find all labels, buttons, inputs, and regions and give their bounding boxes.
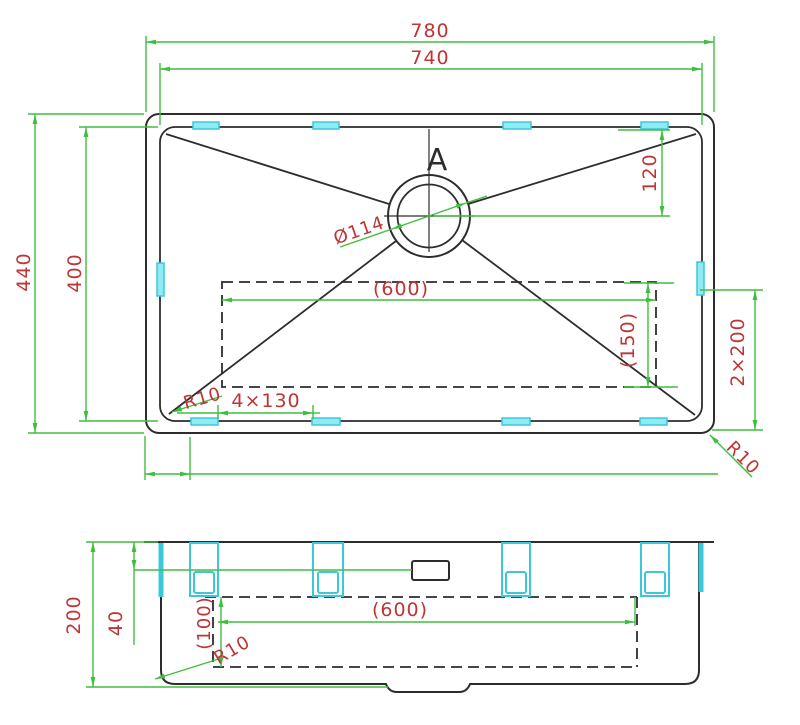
sink-technical-drawing: A — [0, 0, 800, 725]
dim-width-outer: 780 — [410, 20, 449, 42]
top-view: A — [13, 20, 764, 480]
bowl-base-hidden-outline — [222, 282, 656, 387]
clip-top-3 — [503, 122, 531, 129]
dim-right-offset: 2×200 — [727, 317, 749, 386]
dim-bowl-width: (600) — [372, 599, 428, 621]
dim-bowl-depth: (100) — [194, 596, 215, 649]
clip-top-4 — [641, 122, 668, 129]
radius-leader-side — [155, 657, 225, 679]
dim-total-height: 200 — [63, 595, 85, 634]
clip-top-2 — [313, 122, 339, 129]
clip-bottom-2 — [312, 418, 340, 425]
dim-width-inner: 740 — [410, 47, 449, 69]
dim-base-height: (150) — [617, 312, 639, 368]
dim-height-inner: 400 — [64, 253, 86, 292]
clip-top-1 — [193, 122, 219, 129]
section-label: A — [427, 143, 448, 178]
side-view: 200 40 (100) (600) R10 — [63, 542, 714, 692]
side-clip-4-foot — [645, 572, 665, 593]
side-clip-1-foot — [194, 572, 214, 593]
clip-bottom-1 — [191, 418, 218, 425]
dim-clip-pitch: 4×130 — [231, 390, 300, 412]
side-body-outline — [161, 542, 699, 692]
dim-rim-height: 40 — [105, 610, 127, 636]
side-drain-mark — [412, 561, 449, 580]
clip-bottom-3 — [502, 418, 530, 425]
dimension-lines-side-view — [86, 542, 635, 687]
side-clip-3-foot — [506, 572, 526, 593]
clip-bottom-4 — [640, 418, 667, 425]
clip-left — [157, 263, 164, 296]
dim-bottom-radius: R10 — [210, 632, 254, 669]
dim-height-outer: 440 — [13, 252, 35, 291]
dimension-lines-top-view — [28, 36, 763, 480]
dim-radius-bottom-right: R10 — [722, 437, 764, 479]
dim-base-width: (600) — [373, 278, 429, 300]
side-clip-2-foot — [318, 572, 338, 593]
dim-drain-diameter: Ø114 — [331, 212, 388, 249]
dim-drain-offset: 120 — [639, 153, 661, 192]
drawing-svg: A — [0, 0, 800, 725]
